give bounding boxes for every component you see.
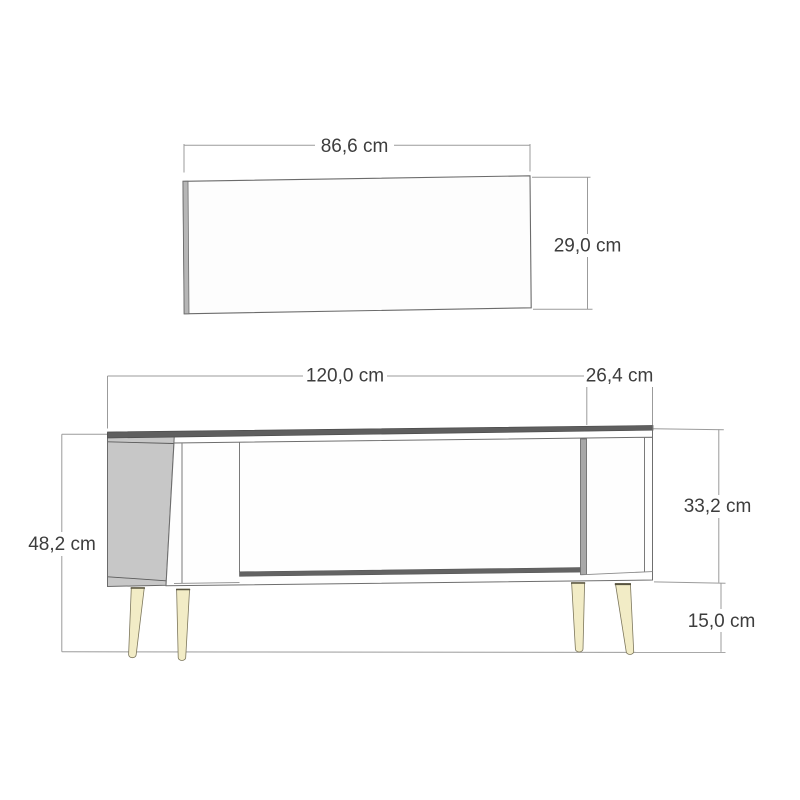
svg-text:86,6 cm: 86,6 cm <box>321 136 389 157</box>
svg-text:26,4 cm: 26,4 cm <box>586 366 654 387</box>
svg-text:48,2 cm: 48,2 cm <box>28 534 96 555</box>
svg-text:120,0 cm: 120,0 cm <box>306 366 384 387</box>
svg-text:33,2 cm: 33,2 cm <box>684 496 752 517</box>
svg-text:29,0 cm: 29,0 cm <box>554 236 622 257</box>
svg-text:15,0 cm: 15,0 cm <box>688 611 756 632</box>
